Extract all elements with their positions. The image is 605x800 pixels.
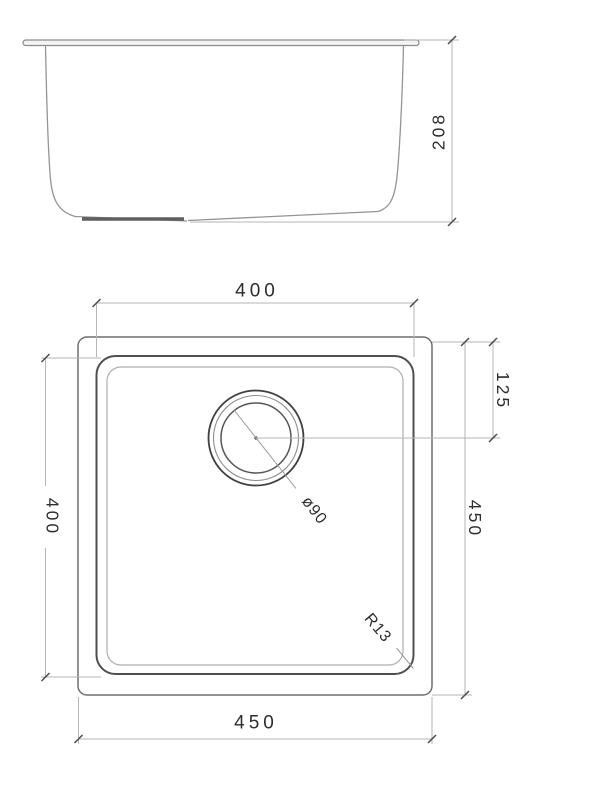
dim-label-drain-diameter: ø90 [298,493,330,528]
corner-radius-leader [397,648,414,669]
side-view-left-wall [46,46,188,222]
sink-technical-drawing-page: 208 ø90 R13 400 [0,0,605,800]
dimension-overall-width-450: 450 [75,697,437,744]
dim-label-overall-width: 450 [234,713,278,734]
dim-label-overall-depth: 450 [465,500,485,538]
dimension-depth-208: 208 [190,36,459,226]
plan-bowl-inner-edge [107,367,403,665]
side-view-rim-profile [23,40,419,46]
side-view-bottom-slope [188,212,378,221]
dim-label-bowl-width: 400 [235,281,279,302]
side-view-right-wall [378,46,404,212]
side-view: 208 [23,36,459,226]
dim-label-corner-radius: R13 [361,610,395,646]
dim-label-depth: 208 [429,112,449,150]
plan-view: ø90 R13 400 400 4 [41,281,513,745]
technical-drawing: 208 ø90 R13 400 [0,0,605,800]
dimension-overall-depth-450: 450 [432,338,501,699]
dimension-bowl-depth-400: 400 [41,354,101,681]
dim-label-drain-offset: 125 [493,372,513,410]
dimension-drain-offset-125: 125 [256,338,513,442]
dimension-bowl-width-400: 400 [93,281,419,358]
dim-label-bowl-depth: 400 [42,498,62,536]
